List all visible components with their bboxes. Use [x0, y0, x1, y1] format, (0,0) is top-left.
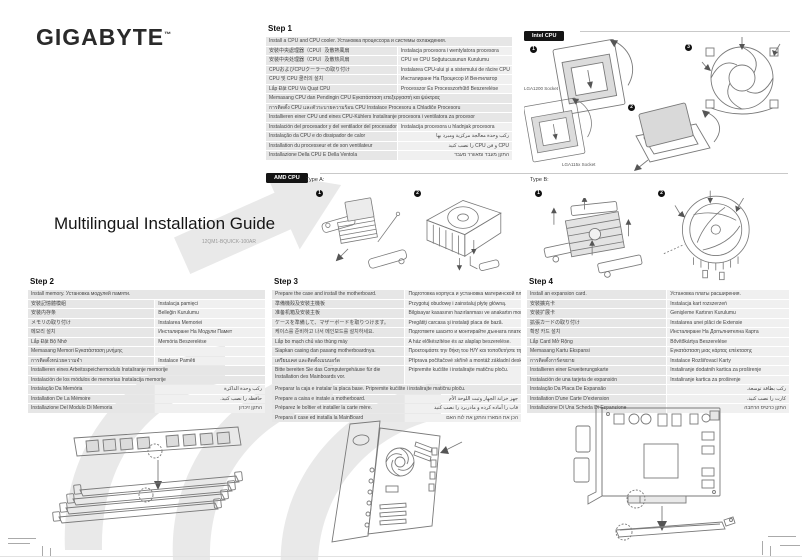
row-text-right: Przygotuj obudowę i zainstaluj płytę głó… [405, 300, 521, 309]
row-text-left: การติดตั้งหน่วยความจำ [28, 357, 154, 366]
row-text-left: 安裝中央處理器（CPU）及散熱風扇 [266, 47, 397, 56]
table-row: Installation D'une Carte D'extensionكارت… [527, 395, 789, 404]
table-row: Préparez le boîtier et installer la cart… [272, 404, 521, 413]
step2-table: Install memory. Установка модулей памяти… [28, 290, 265, 413]
row-text-right: Instalacja procesora i wentylatora proce… [398, 47, 512, 56]
table-row: Instalação Da Placa De Expansãoركب بطاقة… [527, 385, 789, 394]
row-text-right: Pripremite kućište i instalirajte matičn… [405, 366, 521, 384]
table-row: การติดตั้ง CPU และตัวระบายความร้อน CPU I… [266, 104, 512, 113]
amd-type-b-marker-2: 2 [658, 190, 665, 197]
row-text-right: Instalarea Memoriei [155, 319, 265, 328]
row-text: Preparar la caja e instalar la placa bas… [272, 385, 521, 394]
row-text-left: CPU 및 CPU 쿨러의 설치 [266, 75, 397, 84]
row-text-right: Belleğin Kurulumu [155, 309, 265, 318]
row-text-left: Préparez le boîtier et installer la cart… [272, 404, 404, 413]
row-text-left: Installation du processeur et de son ven… [266, 142, 397, 151]
table-row: การติดตั้งหน่วยความจำInstalace Paměti [28, 357, 265, 366]
table-row: Installation De La Mémoireحافظه را نصب ك… [28, 395, 265, 404]
crop-mark [780, 545, 800, 546]
table-row: メモリの取り付けInstalarea Memoriei [28, 319, 265, 328]
step3-section: Step 3 Prepare the case and install the … [272, 277, 521, 422]
step4-table: Install an expansion card.Установка плат… [527, 290, 789, 413]
step1-section: Step 1 Install a CPU and CPU cooler. Уст… [266, 24, 512, 160]
step4-heading: Step 4 [529, 277, 789, 286]
table-row: 安裝擴充卡Instalacja kart rozszerzeń [527, 300, 789, 309]
row-text-left: Prepare the case and install the motherb… [272, 290, 404, 299]
table-row: CPUおよびCPUクーラーの取り付けInstalarea CPU-ului şi… [266, 66, 512, 75]
row-text: Installieren einer CPU und eines CPU-Küh… [266, 113, 512, 122]
row-text: การติดตั้ง CPU และตัวระบายความร้อน CPU I… [266, 104, 512, 113]
row-text-left: Lắp Đặt Bộ Nhớ [28, 338, 154, 347]
row-text-right: Инсталиране На Процесор И Вентилатор [398, 75, 512, 84]
crop-mark [8, 543, 30, 544]
row-text-left: 准备机箱及安装主板 [272, 309, 404, 318]
row-text-left: Installation D'une Carte D'extension [527, 395, 666, 404]
table-row: Bitte bereiten Sie das Computergehäuse f… [272, 366, 521, 384]
row-text-right: CPU و فن CPU را نصب كنيد [398, 142, 512, 151]
row-text: Installieren eines Arbeitsspeichermoduls… [28, 366, 265, 375]
row-text-right: قاب را آماده كرده و مادربرد را نصب كنيد [405, 404, 521, 413]
row-text-left: Memasang Kartu Ekspansi [527, 347, 666, 356]
row-text-right: Instaliranje dodatnih kartica za prošire… [667, 366, 789, 375]
row-text-left: Install an expansion card. [527, 290, 666, 299]
row-text-left: メモリの取り付け [28, 319, 154, 328]
row-text-right: Instalarea CPU-ului şi a sistemului de r… [398, 66, 512, 75]
amd-type-b-retention-diagram [541, 198, 649, 284]
table-row: 拡張カードの取り付けInstalarea unei plăci de Exten… [527, 319, 789, 328]
row-text-left: 安裝擴充卡 [527, 300, 666, 309]
row-text-right: התקן זיכרון [155, 404, 265, 413]
table-row: 安裝記憶體模組Instalacja pamięci [28, 300, 265, 309]
table-row: Instalación de una tarjeta de expansiónI… [527, 376, 789, 385]
crop-mark [50, 548, 51, 556]
trademark-symbol: ™ [164, 31, 172, 38]
amd-type-a-cooler-diagram [418, 192, 508, 280]
row-text-right: Instalarea unei plăci de Extensie [667, 319, 789, 328]
step3-heading: Step 3 [274, 277, 521, 286]
amd-cpu-label: AMD CPU [266, 173, 308, 183]
row-text-left: ケースを準備して、マザーボードを取りつけます。 [272, 319, 404, 328]
row-text-left: Instalación del procesador y del ventila… [266, 123, 397, 132]
crop-mark [768, 536, 796, 537]
row-text-right: התקן מעבד ומאוורר מעבד [398, 151, 512, 160]
table-row: Installieren eines Arbeitsspeichermoduls… [28, 366, 265, 375]
row-text-right: Instalacija procesora u hladnjak proceso… [398, 123, 512, 132]
row-text-left: Siapkan casing dan pasang motherboardnya… [272, 347, 404, 356]
crop-mark [42, 546, 43, 556]
table-row: Installazione Del Modulo Di Memoriaהתקן … [28, 404, 265, 413]
table-row: 安装内存条Belleğin Kurulumu [28, 309, 265, 318]
intel-step-marker-1: 1 [530, 46, 537, 53]
row-text-left: Memasang Memori Εγκατάσταση μνήμης [28, 347, 154, 356]
case-motherboard-diagram [328, 414, 468, 552]
row-text-right: Genişleme Kartının Kurulumu [667, 309, 789, 318]
table-row: Installazione Della CPU E Della Ventolaה… [266, 151, 512, 160]
row-text-left: Instalación de una tarjeta de expansión [527, 376, 666, 385]
intel-cpu-block: Intel CPU 1 2 3 LGA1200 Socket LGA115x S… [524, 24, 790, 174]
row-text-right: Příprava počítačové skříně a montáž zákl… [405, 357, 521, 366]
amd-type-a-marker-2: 2 [414, 190, 421, 197]
row-text-right: Bilgisayar kasasının hazırlanması ve ana… [405, 309, 521, 318]
row-text-left: Installation De La Mémoire [28, 395, 154, 404]
row-text-left: 安装中央处理器（CPU）及散热风扇 [266, 56, 397, 65]
table-row: Lắp bo mạch chủ vào thùng máyA ház előké… [272, 338, 521, 347]
row-text-right: حافظه را نصب كنيد. [155, 395, 265, 404]
memory-install-diagram [42, 424, 252, 536]
table-row: Install memory. Установка модулей памяти… [28, 290, 265, 299]
row-text-right: Bővítőkártya Beszerelése [667, 338, 789, 347]
table-row: Lắp Đặt Bộ NhớMemória Beszerelése [28, 338, 265, 347]
row-text-left: 準備機殼及安裝主機板 [272, 300, 404, 309]
step2-section: Step 2 Install memory. Установка модулей… [28, 277, 265, 413]
row-text-left: Installazione Della CPU E Della Ventola [266, 151, 397, 160]
gigabyte-logo: GIGABYTE™ [36, 24, 172, 51]
table-row: Memasang CPU dan Pendingin CPU Εγκατάστα… [266, 94, 512, 103]
row-text-right: Инсталиране На Модули Памет [155, 328, 265, 337]
amd-type-a-label: Type A: [306, 177, 324, 183]
document-code: 12QM1-BQUICK-100AR [118, 239, 256, 245]
amd-divider-line [320, 173, 788, 174]
table-row: Memasang Memori Εγκατάσταση μνήμης [28, 347, 265, 356]
row-text-right: ركب بطاقة توسعة. [667, 385, 789, 394]
table-row: Preparar la caja e instalar la placa bas… [272, 385, 521, 394]
table-row: Siapkan casing dan pasang motherboardnya… [272, 347, 521, 356]
lga1200-socket-label: LGA1200 Socket [524, 86, 558, 91]
row-text-right: Instalace Rozšiřovací Karty [667, 357, 789, 366]
table-row: Installieren einer ErweiterungskarteInst… [527, 366, 789, 375]
row-text-right: ركب وحدة معالجة مركزية ومبرد بها [398, 132, 512, 141]
intel-divider-line [580, 31, 790, 32]
table-row: Instalación de los módulos de memorias I… [28, 376, 265, 385]
row-text: Install memory. Установка модулей памяти… [28, 290, 265, 299]
table-row: การติดตั้งการ์ดขยายInstalace Rozšiřovací… [527, 357, 789, 366]
row-text-right: Instalace Paměti [155, 357, 265, 366]
table-row: 케이스를 준비하고 나서 메인보드를 설치하세요.Подгответе шаси… [272, 328, 521, 337]
row-text-left: Lắp Đặt CPU Và Quạt CPU [266, 85, 397, 94]
step3-table: Prepare the case and install the motherb… [272, 290, 521, 422]
table-row: 확장 카드 설치Инсталиране На Допълнителна Карт… [527, 328, 789, 337]
table-row: Lắp Card Mở RộngBővítőkártya Beszerelése [527, 338, 789, 347]
table-row: 安装中央处理器（CPU）及散热风扇CPU ve CPU Soğutucusunu… [266, 56, 512, 65]
table-row: เตรียมเคส และติดตั้งเมนบอร์ดPříprava poč… [272, 357, 521, 366]
table-row: Prepare a caixa e instale a motherboard.… [272, 395, 521, 404]
row-text-right: Инсталиране На Допълнителна Карта [667, 328, 789, 337]
row-text-right: Προετοιμάστε την θήκη του Η/Υ και τοποθε… [405, 347, 521, 356]
table-row: Prepare the case and install the motherb… [272, 290, 521, 299]
row-text: Instalación de los módulos de memorias I… [28, 376, 265, 385]
amd-type-b-label: Type B: [530, 177, 549, 183]
row-text-right: Подготовка корпуса и установка материнск… [405, 290, 521, 299]
row-text: Memasang CPU dan Pendingin CPU Εγκατάστα… [266, 94, 512, 103]
row-text-right: A ház előkészítése és az alaplap beszere… [405, 338, 521, 347]
amd-type-b-marker-1: 1 [535, 190, 542, 197]
page-title: Multilingual Installation Guide [54, 214, 275, 234]
row-text-left: Installieren einer Erweiterungskarte [527, 366, 666, 375]
row-text-left: การติดตั้งการ์ดขยาย [527, 357, 666, 366]
row-text-right: كارت را نصب كنيد. [667, 395, 789, 404]
crop-mark [762, 541, 763, 555]
row-text-right: Подгответе шасито и монтирайте дънната п… [405, 328, 521, 337]
table-row: 메모리 설치Инсталиране На Модули Памет [28, 328, 265, 337]
crop-mark [8, 538, 36, 539]
row-text-left: Lắp Card Mở Rộng [527, 338, 666, 347]
row-text-left: 安装内存条 [28, 309, 154, 318]
row-text-right: Instalacja pamięci [155, 300, 265, 309]
row-text-right: Instalacja kart rozszerzeń [667, 300, 789, 309]
installation-guide-page: { "page": { "brand": "GIGABYTE", "brand_… [0, 0, 802, 560]
table-row: 安装扩展卡Genişleme Kartının Kurulumu [527, 309, 789, 318]
row-text-right: CPU ve CPU Soğutucusunun Kurulumu [398, 56, 512, 65]
row-text-left: 메모리 설치 [28, 328, 154, 337]
row-text-left: 安裝記憶體模組 [28, 300, 154, 309]
table-row: Install a CPU and CPU cooler. Установка … [266, 37, 512, 46]
table-row: Install an expansion card.Установка плат… [527, 290, 789, 299]
step4-section: Step 4 Install an expansion card.Установ… [527, 277, 789, 413]
row-text-right: Memória Beszerelése [155, 338, 265, 347]
step1-heading: Step 1 [268, 24, 512, 33]
intel-step-marker-2: 2 [628, 104, 635, 111]
table-row: Installieren einer CPU und eines CPU-Küh… [266, 113, 512, 122]
table-row: Lắp Đặt CPU Và Quạt CPUProcesszor És Pro… [266, 85, 512, 94]
row-text-right [155, 347, 265, 356]
step1-table: Install a CPU and CPU cooler. Установка … [266, 37, 512, 160]
row-text-left: 拡張カードの取り付け [527, 319, 666, 328]
row-text-right: جهز خزانة الجهاز وثبت اللوحة الأم [405, 395, 521, 404]
table-row: Instalação Da Memóriaركب وحدة الذاكرة [28, 385, 265, 394]
row-text-left: 安装扩展卡 [527, 309, 666, 318]
row-text-left: เตรียมเคส และติดตั้งเมนบอร์ด [272, 357, 404, 366]
table-row: 安裝中央處理器（CPU）及散熱風扇Instalacja procesora i … [266, 47, 512, 56]
row-text-right: Pregătiţi carcasa şi instalaţi placa de … [405, 319, 521, 328]
intel-socket-cooler-diagram [524, 36, 790, 172]
row-text-left: Instalação Da Placa De Expansão [527, 385, 666, 394]
row-text-left: CPUおよびCPUクーラーの取り付け [266, 66, 397, 75]
page-bottom-edge [0, 556, 802, 557]
row-text-right: ركب وحدة الذاكرة [155, 385, 265, 394]
row-text-left: Instalação Da Memória [28, 385, 154, 394]
table-row: Memasang Kartu EkspansiΕγκατάσταση μιας … [527, 347, 789, 356]
row-text-left: Prepare a caixa e instale a motherboard. [272, 395, 404, 404]
intel-step-marker-3: 3 [685, 44, 692, 51]
amd-type-a-socket-diagram [320, 196, 412, 280]
crop-mark [770, 546, 771, 556]
table-row: Instalación del procesador y del ventila… [266, 123, 512, 132]
amd-type-a-marker-1: 1 [316, 190, 323, 197]
brand-text: GIGABYTE [36, 24, 164, 50]
step2-heading: Step 2 [30, 277, 265, 286]
table-row: Installation du processeur et de son ven… [266, 142, 512, 151]
table-row: 准备机箱及安装主板Bilgisayar kasasının hazırlanma… [272, 309, 521, 318]
expansion-card-diagram [552, 406, 750, 548]
row-text-right: Instaliranje kartica za proširenje [667, 376, 789, 385]
row-text-right: Processzor És Processzorhűtő Beszerelése [398, 85, 512, 94]
row-text-left: Installazione Del Modulo Di Memoria [28, 404, 154, 413]
row-text: Install a CPU and CPU cooler. Установка … [266, 37, 512, 46]
table-row: ケースを準備して、マザーボードを取りつけます。Pregătiţi carcasa… [272, 319, 521, 328]
amd-type-b-cooler-diagram [662, 190, 764, 284]
row-text-left: Instalação da CPU e do dissipador de cal… [266, 132, 397, 141]
row-text-left: Bitte bereiten Sie das Computergehäuse f… [272, 366, 404, 384]
row-text-right: Установка платы расширения. [667, 290, 789, 299]
row-text-left: Lắp bo mạch chủ vào thùng máy [272, 338, 404, 347]
table-row: 準備機殼及安裝主機板Przygotuj obudowę i zainstaluj… [272, 300, 521, 309]
row-text-right: Εγκατάσταση μιας κάρτας επέκτασης [667, 347, 789, 356]
amd-cpu-block: AMD CPU Type A: Type B: 1 2 1 2 [266, 166, 790, 286]
table-row: Instalação da CPU e do dissipador de cal… [266, 132, 512, 141]
row-text-left: 확장 카드 설치 [527, 328, 666, 337]
row-text-left: 케이스를 준비하고 나서 메인보드를 설치하세요. [272, 328, 404, 337]
table-row: CPU 및 CPU 쿨러의 설치Инсталиране На Процесор … [266, 75, 512, 84]
